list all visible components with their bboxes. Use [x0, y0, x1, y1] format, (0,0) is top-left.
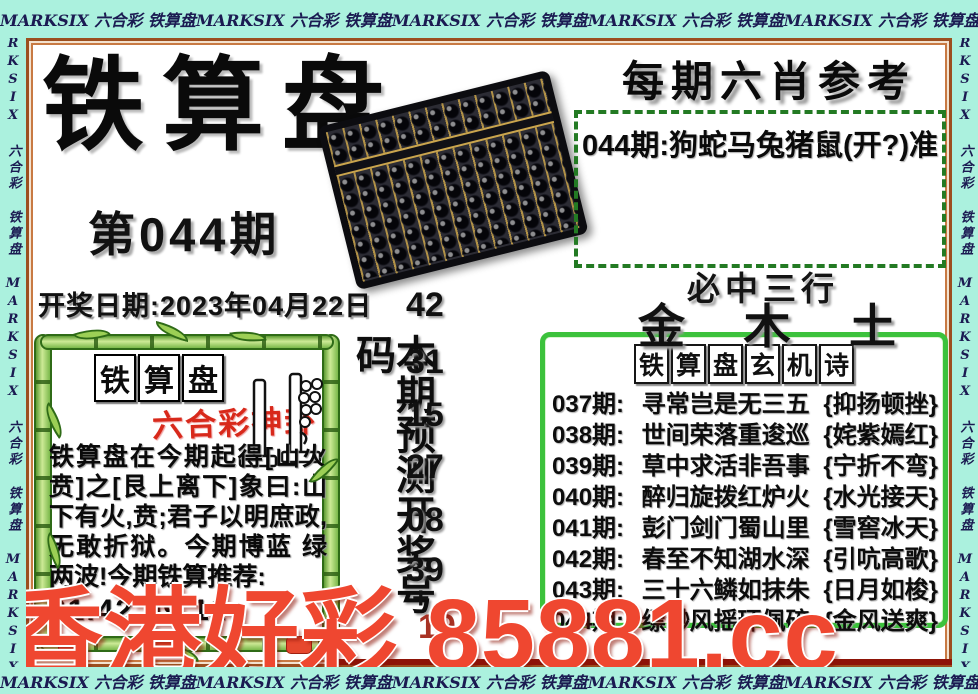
poem-row: 037期:寻常岂是无三五{抑扬顿挫} [552, 389, 938, 420]
draw-date: 开奖日期:2023年04月22日 [38, 284, 372, 323]
poem-row: 040期:醉归旋拨红炉火{水光接天} [552, 482, 938, 513]
poem-text: 世间荣落重逡巡 [628, 420, 823, 451]
left-border-text: MARKSIX 六合彩 铁算盘 MARKSIX 六合彩 铁算盘 MARKSIX [4, 0, 23, 694]
border-text: MARKSIX 六合彩 铁算盘 [0, 669, 196, 693]
poem-issue: 041期: [552, 513, 628, 544]
metal-earth: 土 [849, 288, 896, 357]
border-text: MARKSIX 六合彩 铁算盘 [196, 669, 392, 693]
poem-hint: {雪窖冰天} [823, 513, 938, 544]
poem-row: 042期:春至不知湖水深{引吭高歌} [552, 544, 938, 575]
poem-row: 038期:世间荣落重逡巡{姹紫嫣红} [552, 420, 938, 451]
right-border-strip: MARKSIX 六合彩 铁算盘 MARKSIX 六合彩 铁算盘 MARKSIX [952, 0, 978, 694]
poem-text: 彭门剑门蜀山里 [628, 513, 823, 544]
border-text: MARKSIX 六合彩 铁算盘 [784, 669, 978, 693]
title-char: 铁 [94, 354, 136, 402]
poem-hint: {抑扬顿挫} [823, 389, 938, 420]
prediction-number: 42 [406, 286, 444, 325]
border-text: MARKSIX 六合彩 铁算盘 [588, 669, 784, 693]
prediction-number: 08 [406, 501, 444, 540]
left-border-strip: MARKSIX 六合彩 铁算盘 MARKSIX 六合彩 铁算盘 MARKSIX [0, 0, 26, 694]
poem-issue: 040期: [552, 482, 628, 513]
border-text: MARKSIX 六合彩 铁算盘 [196, 7, 392, 31]
title-char: 算 [138, 354, 180, 402]
prediction-number: 27 [406, 448, 444, 487]
six-xiao-tip: 044期:狗蛇马兔猪鼠(开?)准 [578, 122, 942, 164]
top-border-strip: MARKSIX 六合彩 铁算盘 MARKSIX 六合彩 铁算盘 MARKSIX … [0, 0, 978, 38]
border-text: MARKSIX 六合彩 铁算盘 [392, 7, 588, 31]
six-xiao-box: 044期:狗蛇马兔猪鼠(开?)准 [574, 110, 946, 268]
poem-issue: 038期: [552, 420, 628, 451]
poem-row: 041期:彭门剑门蜀山里{雪窖冰天} [552, 513, 938, 544]
poem-text: 寻常岂是无三五 [628, 389, 823, 420]
border-text: MARKSIX 六合彩 铁算盘 [392, 669, 588, 693]
border-text: MARKSIX 六合彩 铁算盘 [784, 7, 978, 31]
poem-hint: {引吭高歌} [823, 544, 938, 575]
border-text: MARKSIX 六合彩 铁算盘 [588, 7, 784, 31]
poem-issue: 037期: [552, 389, 628, 420]
prediction-number: 15 [406, 396, 444, 435]
title-char: 盘 [182, 354, 224, 402]
poem-issue: 039期: [552, 451, 628, 482]
poem-row: 039期:草中求活非吾事{宁折不弯} [552, 451, 938, 482]
issue-number: 第044期 [88, 196, 280, 265]
poem-text: 春至不知湖水深 [628, 544, 823, 575]
poem-hint: {宁折不弯} [823, 451, 938, 482]
metal-gold: 金 [638, 288, 685, 357]
six-xiao-title: 每期六肖参考 [622, 48, 916, 109]
three-rows-metals: 金 木 土 [638, 288, 896, 357]
right-border-text: MARKSIX 六合彩 铁算盘 MARKSIX 六合彩 铁算盘 MARKSIX [956, 0, 975, 694]
kua-title: 铁算盘 [94, 354, 226, 402]
kua-body-text: 铁算盘在今期起得[山火贲]之[艮上离下]象曰:山下有火,贲;君子以明庶政,无敢折… [49, 442, 327, 592]
poem-text: 醉归旋拨红炉火 [628, 482, 823, 513]
poem-text: 草中求活非吾事 [628, 451, 823, 482]
poem-hint: {水光接天} [823, 482, 938, 513]
lottery-flyer-page: MARKSIX 六合彩 铁算盘 MARKSIX 六合彩 铁算盘 MARKSIX … [0, 0, 978, 694]
prediction-number: 31 [406, 343, 444, 382]
poem-hint: {姹紫嫣红} [823, 420, 938, 451]
bottom-border-strip: MARKSIX 六合彩 铁算盘 MARKSIX 六合彩 铁算盘 MARKSIX … [0, 667, 978, 694]
poem-issue: 042期: [552, 544, 628, 575]
metal-wood: 木 [744, 288, 791, 357]
border-text: MARKSIX 六合彩 铁算盘 [0, 7, 196, 31]
